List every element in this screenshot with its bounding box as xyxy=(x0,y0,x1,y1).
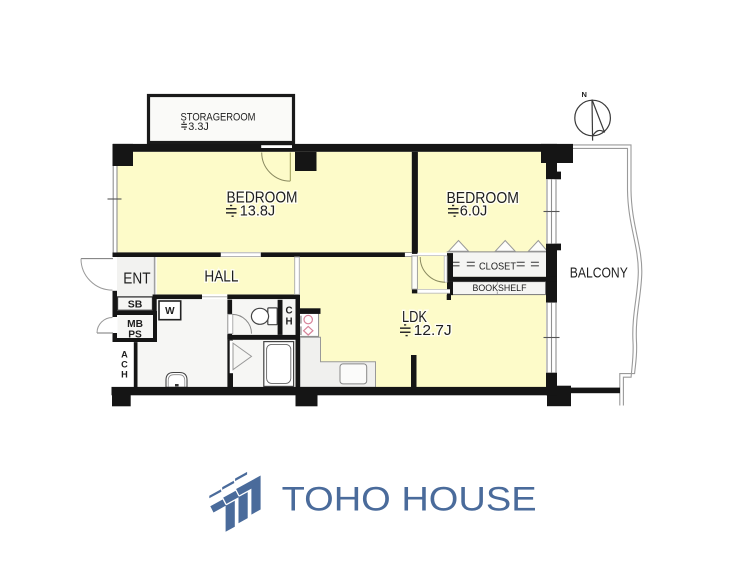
svg-text:PS: PS xyxy=(128,330,142,341)
svg-text:C: C xyxy=(121,360,128,370)
svg-text:6.0J: 6.0J xyxy=(460,203,488,220)
svg-text:A: A xyxy=(121,350,128,360)
svg-text:W: W xyxy=(165,306,175,317)
svg-text:H: H xyxy=(121,370,128,380)
svg-text:ENT: ENT xyxy=(123,270,151,287)
svg-text:12.7J: 12.7J xyxy=(414,322,452,339)
svg-text:HALL: HALL xyxy=(204,268,238,285)
svg-text:N: N xyxy=(582,90,587,99)
svg-text:H: H xyxy=(285,317,292,328)
svg-text:SB: SB xyxy=(128,299,143,311)
svg-text:CLOSET: CLOSET xyxy=(479,261,517,272)
svg-text:BALCONY: BALCONY xyxy=(570,265,628,282)
svg-text:MB: MB xyxy=(127,319,143,330)
svg-text:BOOKSHELF: BOOKSHELF xyxy=(473,282,527,293)
svg-text:C: C xyxy=(285,306,292,317)
svg-text:3.3J: 3.3J xyxy=(188,121,209,133)
svg-text:13.8J: 13.8J xyxy=(240,203,276,220)
svg-text:TOHO HOUSE: TOHO HOUSE xyxy=(282,480,537,518)
